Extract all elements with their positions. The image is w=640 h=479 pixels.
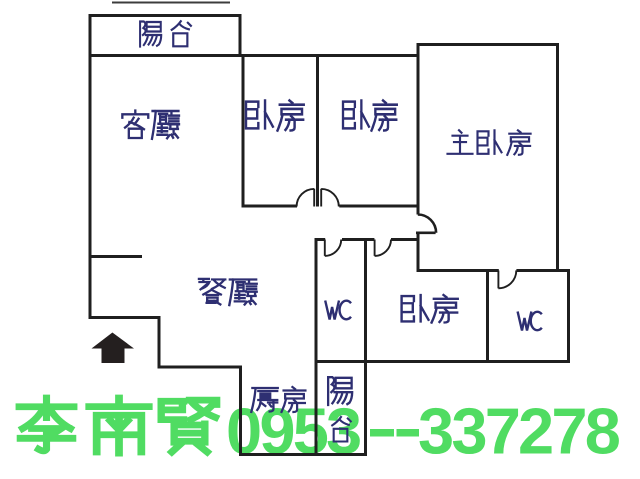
svg-text:337278: 337278	[418, 395, 620, 468]
